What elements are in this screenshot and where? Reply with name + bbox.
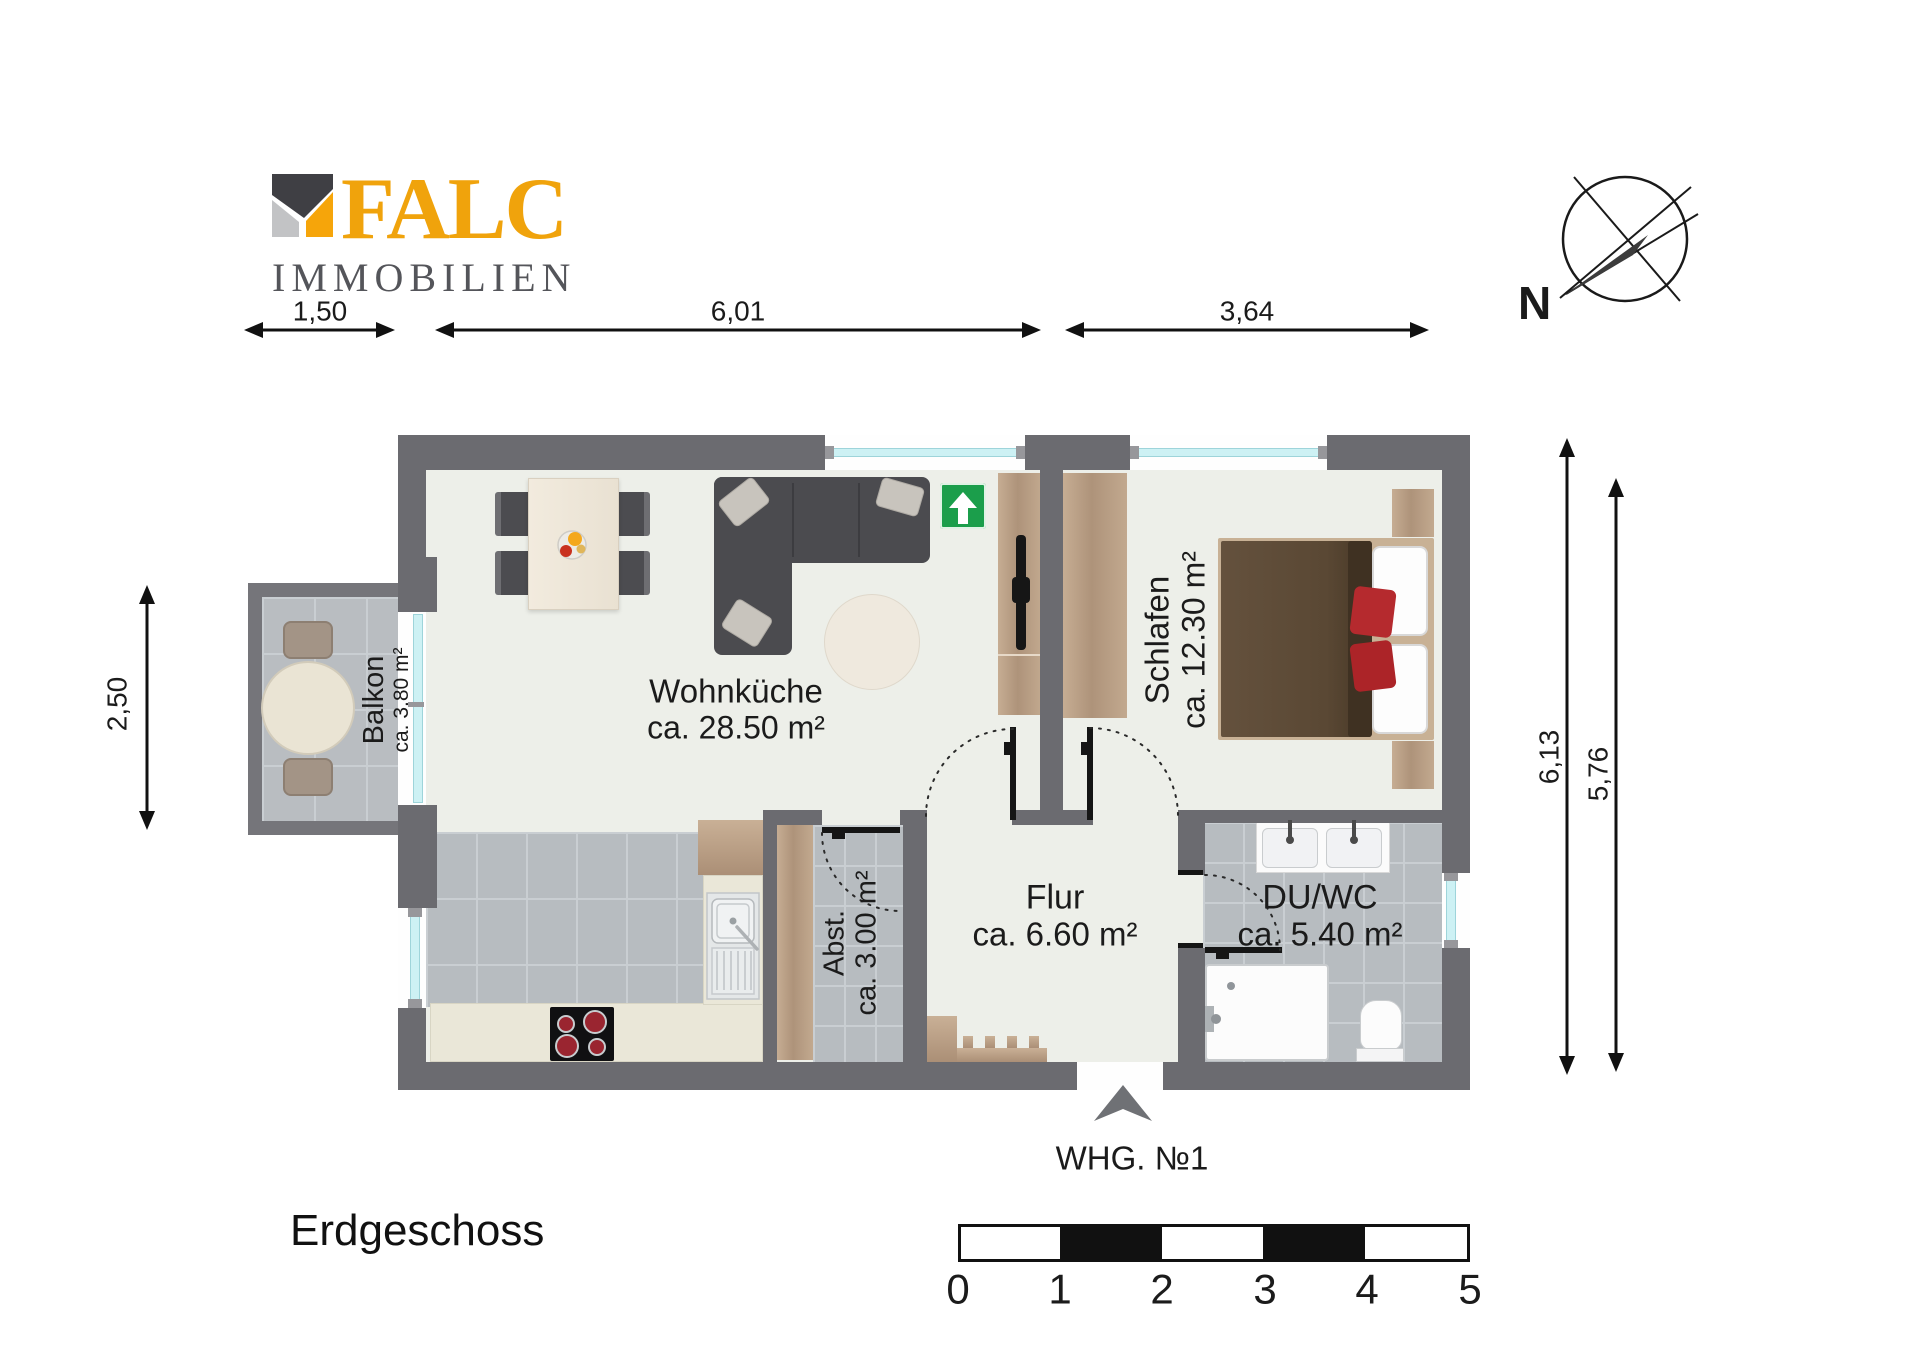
faucet-icons: [1286, 820, 1358, 844]
plan-overlay-graphics: [0, 0, 1920, 1357]
scale-tick-1: 1: [1048, 1265, 1071, 1312]
room-label-wohnkueche: Wohnküche ca. 28.50 m²: [647, 674, 825, 747]
compass-icon: [1560, 177, 1698, 301]
room-area: ca. 5.40 m²: [1237, 917, 1402, 954]
room-label-balkon: Balkon ca. 3.80 m²: [358, 647, 414, 752]
dim-balcony-depth: 2,50: [101, 677, 132, 732]
room-name: Wohnküche: [647, 674, 825, 711]
room-area: ca. 12.30 m²: [1177, 551, 1213, 729]
cooktop-burners-icon: [556, 1011, 606, 1057]
floor-plan-page: FALC IMMOBILIEN N 1,50 6,01 3,64 2,50 6,…: [0, 0, 1920, 1357]
scale-bar: [958, 1224, 1470, 1262]
falc-logo-mark: [272, 174, 333, 237]
room-area: ca. 6.60 m²: [972, 917, 1137, 954]
scale-tick-5: 5: [1458, 1265, 1481, 1312]
dim-balcony-width: 1,50: [293, 295, 348, 326]
fruit-bowl-icon: [558, 531, 586, 559]
room-name: Flur: [972, 878, 1137, 916]
dim-inner-depth: 5,76: [1582, 747, 1613, 802]
room-area: ca. 3.80 m²: [390, 647, 414, 752]
dim-outer-depth: 6,13: [1533, 730, 1564, 785]
entrance-arrow-icon: [1094, 1085, 1152, 1121]
room-label-duschwc: DU/WC ca. 5.40 m²: [1237, 878, 1402, 953]
dim-bedroom-width: 3,64: [1220, 295, 1275, 326]
room-label-flur: Flur ca. 6.60 m²: [972, 878, 1137, 953]
brand-tagline: IMMOBILIEN: [272, 258, 576, 298]
brand-name: FALC: [341, 166, 566, 254]
scale-tick-4: 4: [1355, 1265, 1378, 1312]
room-name: DU/WC: [1237, 878, 1402, 916]
floor-title: Erdgeschoss: [290, 1206, 544, 1255]
scale-tick-0: 0: [946, 1265, 969, 1312]
room-name: Abst.: [819, 870, 851, 1015]
scale-tick-2: 2: [1150, 1265, 1173, 1312]
scale-bar-segment-black: [1263, 1227, 1365, 1259]
exit-arrow-icon: [949, 492, 977, 524]
unit-label: WHG. №1: [1056, 1141, 1209, 1178]
dim-living-width: 6,01: [711, 295, 766, 326]
room-name: Schlafen: [1140, 551, 1177, 729]
room-label-abstellraum: Abst. ca. 3.00 m²: [819, 870, 884, 1015]
scale-bar-segment-black: [1060, 1227, 1162, 1259]
compass-north-label: N: [1518, 278, 1551, 330]
room-name: Balkon: [358, 647, 390, 752]
room-area: ca. 3.00 m²: [851, 870, 883, 1015]
scale-tick-3: 3: [1253, 1265, 1276, 1312]
room-area: ca. 28.50 m²: [647, 711, 825, 747]
kitchen-sink-icon: [707, 893, 759, 999]
room-label-schlafen: Schlafen ca. 12.30 m²: [1140, 551, 1213, 729]
shower-fixture-icons: [1205, 982, 1235, 1032]
